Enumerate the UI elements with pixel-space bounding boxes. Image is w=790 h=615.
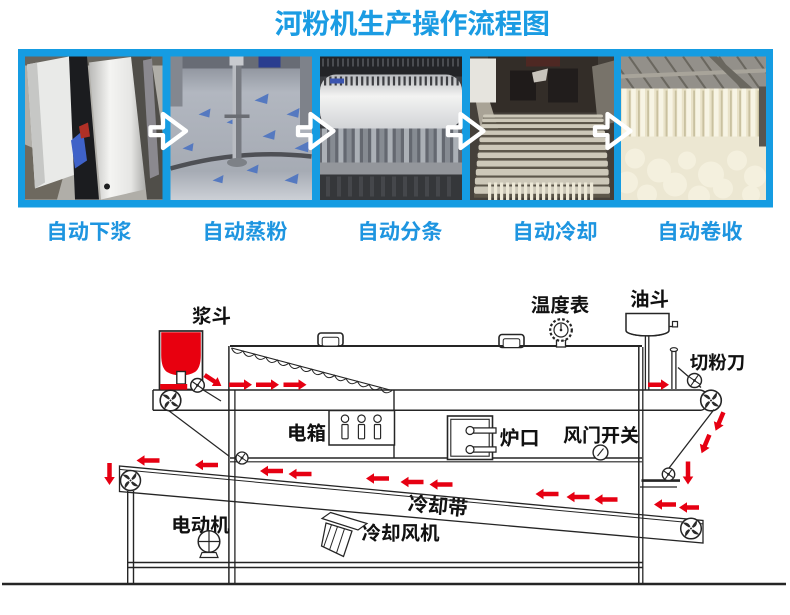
svg-text:自动蒸粉: 自动蒸粉: [202, 215, 287, 246]
svg-text:河粉机生产操作流程图: 河粉机生产操作流程图: [274, 3, 549, 43]
svg-text:冷却风机: 冷却风机: [361, 517, 440, 546]
svg-text:炉口: 炉口: [500, 422, 540, 451]
svg-text:油斗: 油斗: [630, 283, 669, 312]
svg-text:自动卷收: 自动卷收: [657, 215, 742, 246]
svg-text:冷却带: 冷却带: [407, 487, 469, 521]
svg-text:浆斗: 浆斗: [192, 300, 231, 329]
svg-text:自动冷却: 自动冷却: [512, 215, 597, 246]
svg-text:自动下浆: 自动下浆: [46, 215, 131, 246]
svg-text:切粉刀: 切粉刀: [690, 349, 746, 375]
svg-text:电箱: 电箱: [287, 417, 326, 446]
svg-text:温度表: 温度表: [531, 289, 590, 318]
svg-text:风门开关: 风门开关: [563, 421, 639, 448]
svg-text:自动分条: 自动分条: [357, 215, 442, 246]
